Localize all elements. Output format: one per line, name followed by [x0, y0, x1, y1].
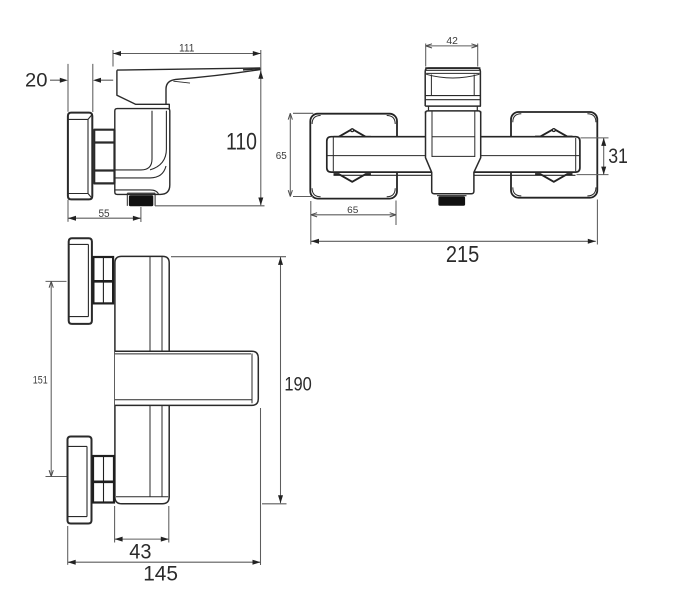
- svg-text:110: 110: [226, 129, 257, 156]
- svg-text:151: 151: [33, 374, 48, 386]
- svg-text:65: 65: [276, 151, 287, 162]
- svg-text:190: 190: [284, 375, 311, 396]
- svg-text:65: 65: [347, 205, 358, 215]
- svg-text:55: 55: [99, 208, 110, 220]
- svg-text:43: 43: [129, 541, 151, 564]
- svg-text:20: 20: [25, 70, 48, 91]
- svg-text:215: 215: [446, 241, 479, 267]
- svg-text:111: 111: [179, 42, 194, 54]
- svg-text:31: 31: [608, 145, 628, 168]
- svg-text:145: 145: [143, 562, 178, 585]
- svg-text:42: 42: [446, 36, 458, 47]
